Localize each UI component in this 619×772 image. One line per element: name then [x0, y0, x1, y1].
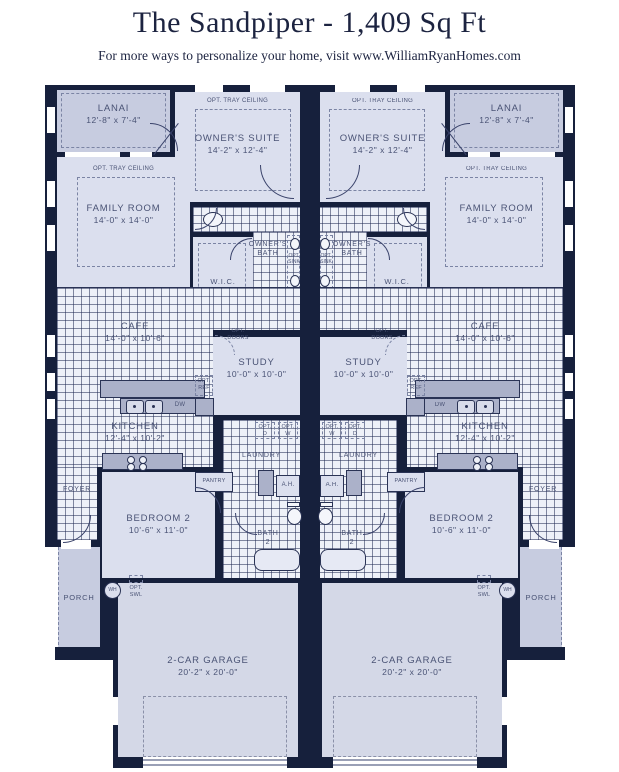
window — [335, 85, 370, 92]
room-dims: 10'-0" x 10'-0" — [213, 369, 300, 380]
room-dims: 10'-6" x 11'-0" — [405, 525, 518, 536]
bathtub-icon — [254, 549, 300, 571]
room-dims: 10'-0" x 10'-0" — [320, 369, 407, 380]
room-dims: 12'-4" x 10'-2" — [57, 433, 213, 444]
opt-swl-label: OPT. SWL — [471, 585, 497, 599]
opt-doors-label: OPT. DOORS — [221, 328, 255, 342]
room-dims: 14'-0" x 10'-6" — [407, 333, 563, 344]
opt-label-line: SWL — [123, 592, 149, 599]
opt-label-line: DOORS — [365, 335, 399, 342]
sliding-door-opening — [65, 152, 120, 157]
window — [397, 85, 425, 92]
room-dims: 12'-8" x 7'-4" — [450, 115, 563, 126]
family-tray-label: OPT. TRAY CEILING — [57, 166, 190, 174]
opt-label-line: SINK — [285, 259, 303, 265]
pantry-label: PANTRY — [195, 478, 233, 485]
toilet-icon — [318, 508, 333, 525]
burner-icon — [127, 463, 135, 471]
opt-label-line: W — [278, 431, 298, 438]
opt-label-line: OPT. — [365, 328, 399, 335]
burner-icon — [139, 463, 147, 471]
room-dims: 10'-6" x 11'-0" — [102, 525, 215, 536]
room-name: CAFE — [57, 321, 213, 333]
wall-porch-step — [55, 647, 103, 660]
room-name-line: BATH — [332, 249, 372, 258]
garage-label: 2-CAR GARAGE 20'-2" x 20'-0" — [322, 655, 502, 678]
room-name: LANAI — [450, 103, 563, 115]
opt-label-line: OPT. — [405, 378, 427, 385]
room-dims: 14'-0" x 14'-0" — [430, 215, 563, 226]
kitchen-island — [415, 380, 520, 398]
suite-tray-label: OPT. TRAY CEILING — [175, 98, 300, 106]
opt-label-line: OPT. — [322, 424, 342, 431]
room-name: OWNER'S SUITE — [320, 133, 445, 145]
bathtub-icon — [320, 549, 366, 571]
opt-label-line: OPT. — [123, 585, 149, 592]
porch-label: PORCH — [520, 593, 562, 603]
opt-label-line: SINK — [317, 259, 335, 265]
faucet-dot — [152, 405, 155, 408]
opt-ref-label: OPT. REF — [193, 378, 215, 392]
opt-washer-label: OPT. W — [278, 424, 298, 438]
window — [565, 373, 573, 391]
garage-door-dash — [143, 696, 287, 757]
sink-bowl-icon — [476, 400, 494, 414]
faucet-dot — [465, 405, 468, 408]
opt-label-line: D — [255, 431, 275, 438]
sink-icon — [290, 275, 300, 287]
air-handler-label: A.H. — [320, 482, 344, 490]
wall-porch-step — [517, 647, 565, 660]
air-handler-label: A.H. — [276, 482, 300, 490]
window — [250, 85, 285, 92]
kitchen-label: KITCHEN 12'-4" x 10'-2" — [407, 421, 563, 444]
room-dims: 14'-2" x 12'-4" — [320, 145, 445, 156]
window — [565, 399, 573, 419]
opt-sink-label: OPT. SINK — [285, 253, 303, 265]
opt-ref-label: OPT. REF — [405, 378, 427, 392]
opt-label-line: DOORS — [221, 335, 255, 342]
driveway-line — [143, 759, 287, 761]
window — [47, 335, 55, 357]
window — [468, 152, 490, 157]
lanai-label: LANAI 12'-8" x 7'-4" — [57, 103, 170, 126]
opt-label-line: OPT. — [193, 378, 215, 385]
sink-bowl-icon — [126, 400, 144, 414]
toilet-icon — [320, 502, 333, 507]
room-name: CAFE — [407, 321, 563, 333]
kitchen-label: KITCHEN 12'-4" x 10'-2" — [57, 421, 213, 444]
room-name: OWNER'S SUITE — [175, 133, 300, 145]
garage-label: 2-CAR GARAGE 20'-2" x 20'-0" — [118, 655, 298, 678]
laundry-label: LAUNDRY — [320, 451, 397, 460]
room-name: KITCHEN — [407, 421, 563, 433]
window — [565, 225, 573, 251]
window — [47, 225, 55, 251]
counter-stub — [406, 398, 425, 416]
counter-stub — [195, 398, 214, 416]
opt-dryer-label: OPT. D — [345, 424, 365, 438]
opt-label-line: OPT. — [278, 424, 298, 431]
opt-label-line: D — [345, 431, 365, 438]
window — [195, 85, 223, 92]
faucet-dot — [484, 405, 487, 408]
driveway-line — [143, 764, 287, 766]
porch-label: PORCH — [58, 593, 100, 603]
room-name-line: BATH — [248, 249, 288, 258]
window — [565, 335, 573, 357]
toilet-icon — [287, 508, 302, 525]
floorplan-page: The Sandpiper - 1,409 Sq Ft For more way… — [0, 0, 619, 772]
toilet-icon — [287, 502, 300, 507]
water-heater-icon: WH — [104, 582, 121, 599]
room-name: FAMILY ROOM — [430, 203, 563, 215]
room-name: 2-CAR GARAGE — [118, 655, 298, 667]
water-heater-icon: WH — [499, 582, 516, 599]
cafe-label: CAFE 14'-0" x 10'-6" — [407, 321, 563, 344]
foyer-label: FOYER — [523, 485, 563, 494]
room-name-line: BATH — [248, 529, 288, 538]
room-dims: 14'-2" x 12'-4" — [175, 145, 300, 156]
pantry-label: PANTRY — [387, 478, 425, 485]
dishwasher-label: DW — [165, 402, 195, 410]
driveway-line — [333, 759, 477, 761]
burner-icon — [485, 463, 493, 471]
room-name-line: 2 — [332, 538, 372, 547]
room-name-line: 2 — [248, 538, 288, 547]
room-name: FAMILY ROOM — [57, 203, 190, 215]
window — [565, 181, 573, 207]
room-name: STUDY — [320, 357, 407, 369]
window — [565, 107, 573, 133]
opt-label-line: OPT. — [255, 424, 275, 431]
room-name-line: OWNER'S — [248, 240, 288, 249]
unit-right: DW WH — [317, 85, 575, 768]
faucet-dot — [133, 405, 136, 408]
study-label: STUDY 10'-0" x 10'-0" — [320, 357, 407, 380]
room-dims: 20'-2" x 20'-0" — [118, 667, 298, 678]
cafe-tile-right — [213, 287, 300, 330]
opt-swl-dash — [477, 575, 491, 583]
bedroom2-label: BEDROOM 2 10'-6" x 11'-0" — [102, 513, 215, 536]
room-dims: 12'-8" x 7'-4" — [57, 115, 170, 126]
sink-bowl-icon — [457, 400, 475, 414]
window — [502, 697, 507, 725]
bath2-label: BATH 2 — [248, 529, 288, 547]
opt-swl-dash — [129, 575, 143, 583]
study-label: STUDY 10'-0" x 10'-0" — [213, 357, 300, 380]
owners-suite-label: OWNER'S SUITE 14'-2" x 12'-4" — [175, 133, 300, 156]
room-dims: 12'-4" x 10'-2" — [407, 433, 563, 444]
dishwasher-label: DW — [425, 402, 455, 410]
opt-label-line: OPT. — [345, 424, 365, 431]
sink-icon — [320, 238, 330, 250]
window — [47, 181, 55, 207]
floorplan: DW WH — [45, 85, 575, 772]
room-dims: 20'-2" x 20'-0" — [322, 667, 502, 678]
range-counter — [102, 453, 183, 470]
suite-tray-label: OPT. TRAY CEILING — [320, 98, 445, 106]
family-tray-label: OPT. TRAY CEILING — [430, 166, 563, 174]
room-dims: 14'-0" x 10'-6" — [57, 333, 213, 344]
opt-label-line: SWL — [471, 592, 497, 599]
lanai-label: LANAI 12'-8" x 7'-4" — [450, 103, 563, 126]
opt-label-line: OPT. — [471, 585, 497, 592]
opt-label-line: OPT. — [221, 328, 255, 335]
window — [47, 373, 55, 391]
family-room-label: FAMILY ROOM 14'-0" x 14'-0" — [430, 203, 563, 226]
room-name: 2-CAR GARAGE — [322, 655, 502, 667]
opt-washer-label: OPT. W — [322, 424, 342, 438]
opt-dryer-label: OPT. D — [255, 424, 275, 438]
room-name-line: BATH — [332, 529, 372, 538]
burner-icon — [473, 463, 481, 471]
kitchen-island — [100, 380, 205, 398]
family-room-label: FAMILY ROOM 14'-0" x 14'-0" — [57, 203, 190, 226]
bath2-label: BATH 2 — [332, 529, 372, 547]
foyer-label: FOYER — [57, 485, 97, 494]
window — [113, 697, 118, 725]
opt-label-line: REF — [405, 385, 427, 392]
cafe-label: CAFE 14'-0" x 10'-6" — [57, 321, 213, 344]
washer-box — [346, 470, 362, 496]
window — [130, 152, 152, 157]
sink-bowl-icon — [145, 400, 163, 414]
page-subtitle: For more ways to personalize your home, … — [0, 48, 619, 64]
sliding-door-opening — [500, 152, 555, 157]
header: The Sandpiper - 1,409 Sq Ft For more way… — [0, 6, 619, 64]
garage-door-dash — [333, 696, 477, 757]
washer-box — [258, 470, 274, 496]
door-swing-arc — [442, 123, 470, 151]
room-name: KITCHEN — [57, 421, 213, 433]
window — [47, 107, 55, 133]
driveway-line — [333, 764, 477, 766]
laundry-label: LAUNDRY — [223, 451, 300, 460]
owners-suite-label: OWNER'S SUITE 14'-2" x 12'-4" — [320, 133, 445, 156]
opt-sink-label: OPT. SINK — [317, 253, 335, 265]
sink-icon — [290, 238, 300, 250]
wic-label: W.I.C. — [193, 277, 253, 287]
room-dims: 14'-0" x 14'-0" — [57, 215, 190, 226]
room-name: LANAI — [57, 103, 170, 115]
room-name: BEDROOM 2 — [102, 513, 215, 525]
opt-label-line: REF — [193, 385, 215, 392]
wic-label: W.I.C. — [367, 277, 427, 287]
cafe-tile-right — [320, 287, 407, 330]
opt-swl-label: OPT. SWL — [123, 585, 149, 599]
room-name: BEDROOM 2 — [405, 513, 518, 525]
opt-doors-label: OPT. DOORS — [365, 328, 399, 342]
page-title: The Sandpiper - 1,409 Sq Ft — [0, 6, 619, 40]
owners-bath-label: OWNER'S BATH — [248, 240, 288, 258]
owners-bath-label: OWNER'S BATH — [332, 240, 372, 258]
range-counter — [437, 453, 518, 470]
sink-icon — [320, 275, 330, 287]
unit-left: DW WH — [45, 85, 303, 768]
room-name-line: OWNER'S — [332, 240, 372, 249]
bedroom2-label: BEDROOM 2 10'-6" x 11'-0" — [405, 513, 518, 536]
opt-label-line: W — [322, 431, 342, 438]
window — [47, 399, 55, 419]
room-name: STUDY — [213, 357, 300, 369]
